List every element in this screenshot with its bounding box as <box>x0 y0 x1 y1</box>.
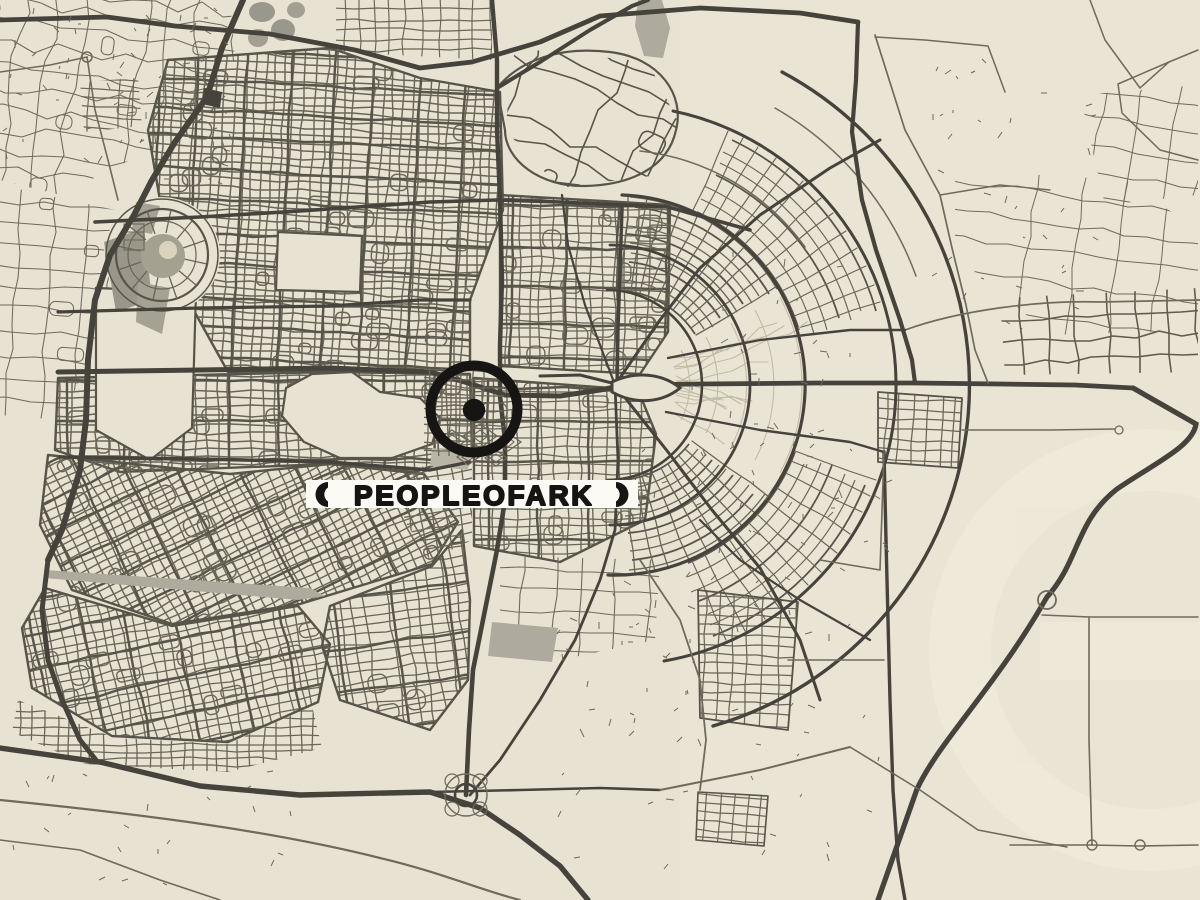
svg-text:PEOPLEOFARK: PEOPLEOFARK <box>354 480 594 511</box>
